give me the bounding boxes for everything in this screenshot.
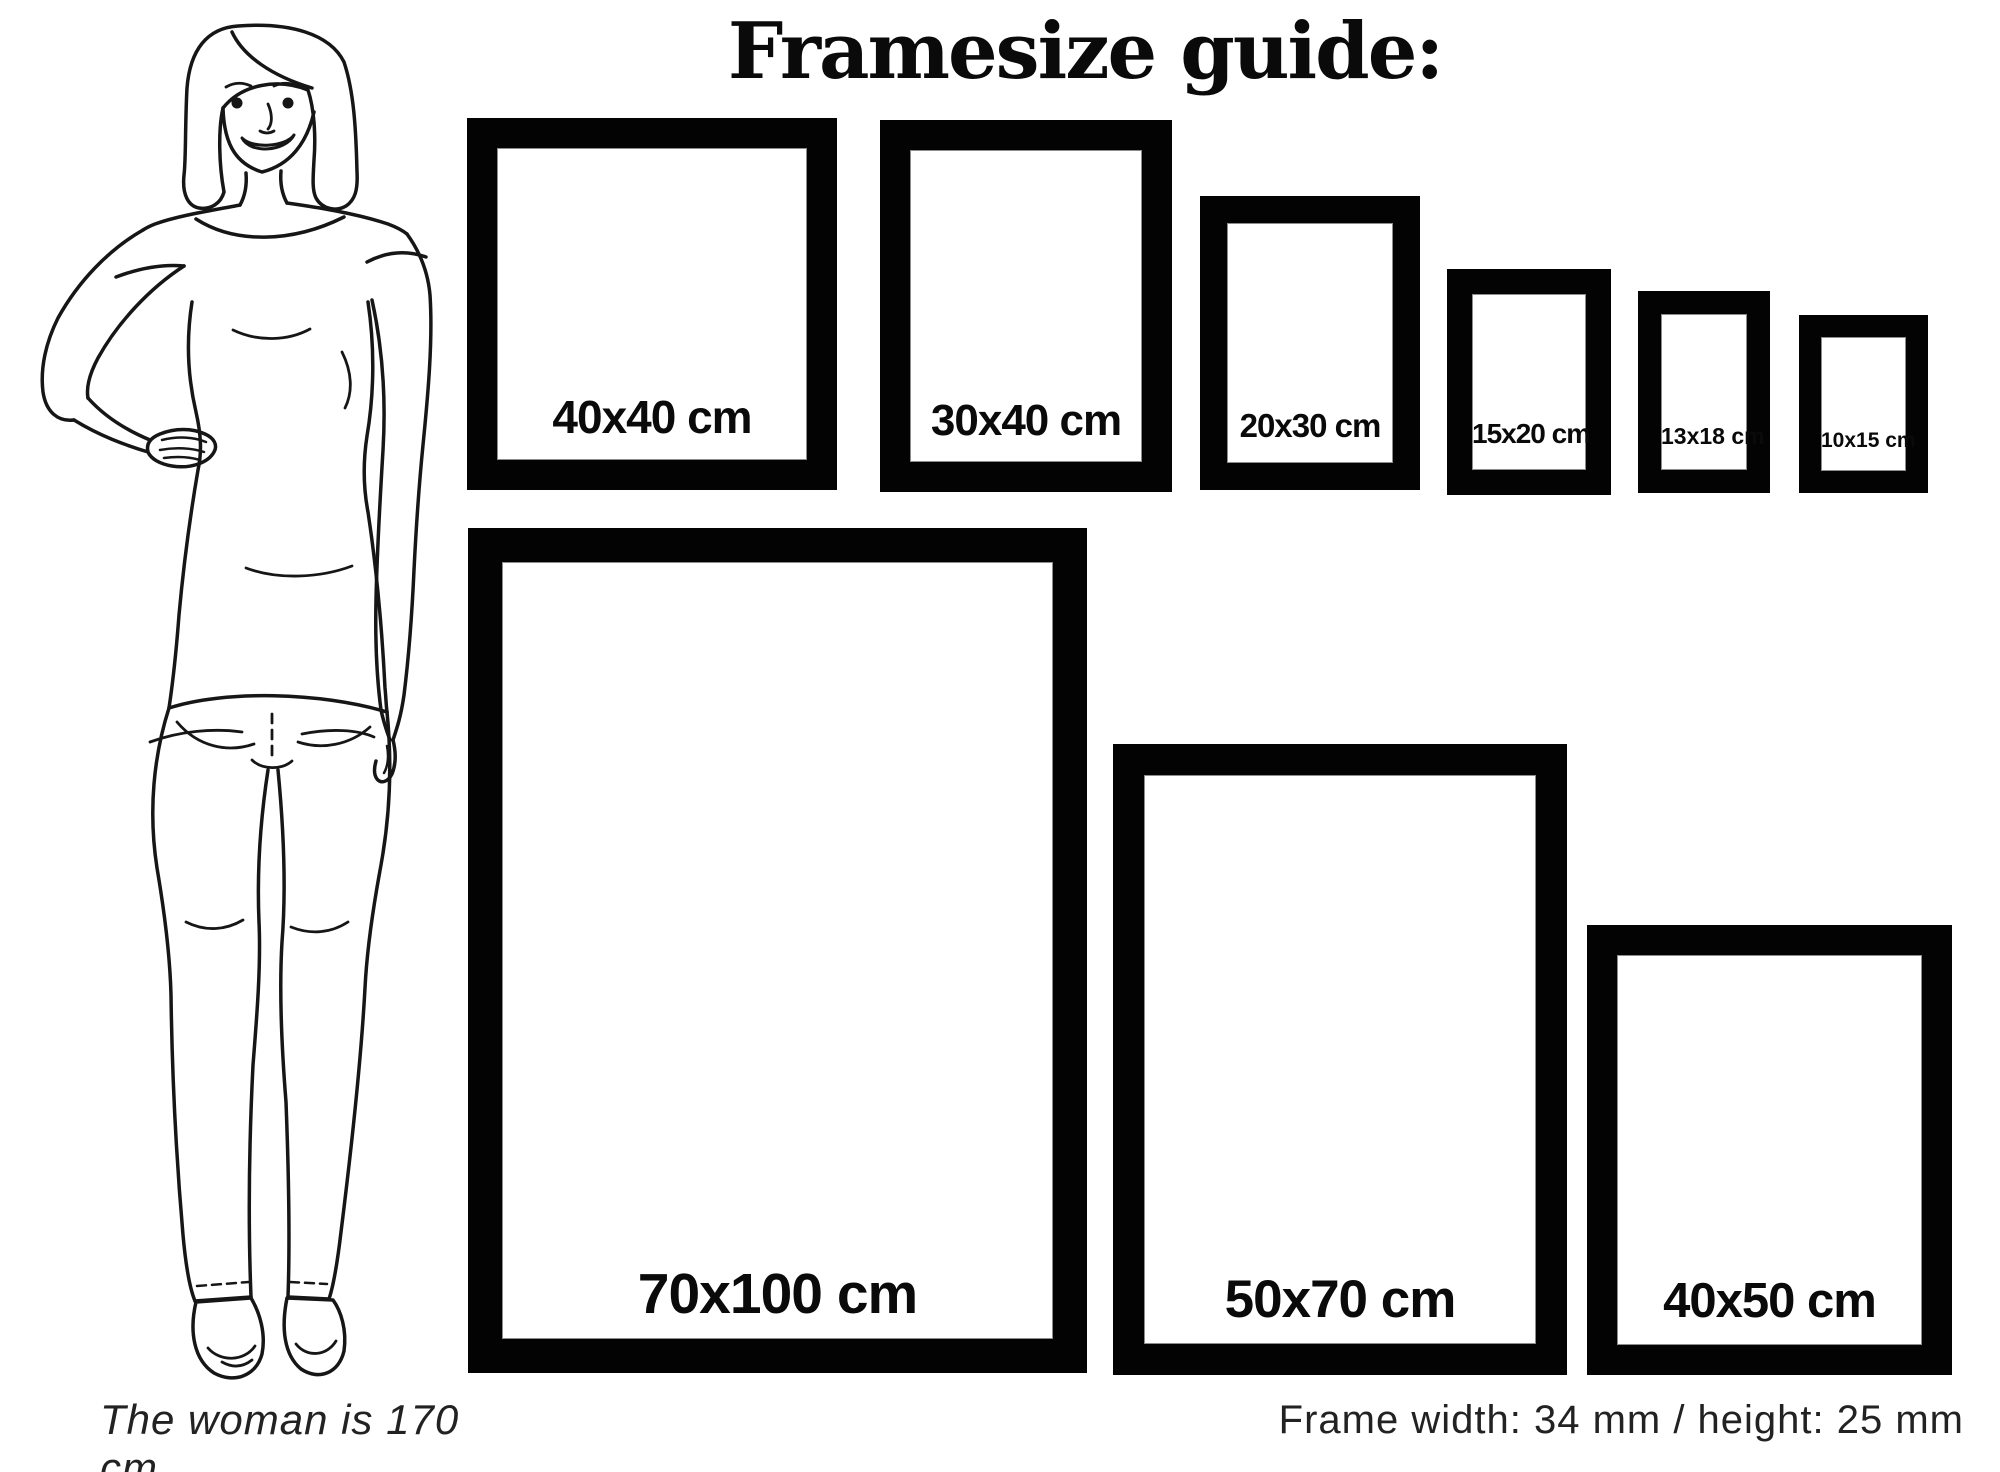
frame-size-label: 13x18 cm — [1661, 423, 1747, 450]
woman-right-shoe — [284, 1298, 345, 1375]
frame-10x15: 10x15 cm — [1799, 315, 1928, 493]
woman-face — [223, 108, 314, 172]
woman-right-arm — [393, 234, 431, 740]
page-title: Framesize guide: — [565, 6, 1605, 97]
framesize-guide: Framesize guide: — [0, 0, 2000, 1472]
frame-size-label: 15x20 cm — [1472, 418, 1586, 450]
frame-size-label: 40x50 cm — [1617, 1273, 1922, 1329]
frame-dimensions-note: Frame width: 34 mm / height: 25 mm — [1064, 1398, 1964, 1443]
frame-20x30: 20x30 cm — [1200, 196, 1420, 490]
frame-size-label: 40x40 cm — [497, 390, 807, 444]
frame-15x20: 15x20 cm — [1447, 269, 1611, 495]
woman-right-leg — [329, 712, 390, 1299]
woman-left-leg — [153, 708, 195, 1301]
frame-13x18: 13x18 cm — [1638, 291, 1770, 493]
frame-size-label: 20x30 cm — [1227, 407, 1393, 445]
frame-size-label: 70x100 cm — [502, 1261, 1053, 1327]
woman-figure-svg — [0, 0, 470, 1400]
frame-size-label: 30x40 cm — [910, 396, 1142, 446]
woman-torso — [169, 302, 200, 708]
frame-40x50: 40x50 cm — [1587, 925, 1952, 1375]
frame-30x40: 30x40 cm — [880, 120, 1172, 492]
woman-height-caption: The woman is 170 cm — [100, 1396, 500, 1472]
woman-illustration — [0, 0, 470, 1400]
frame-size-label: 10x15 cm — [1821, 429, 1906, 453]
woman-jeans-pocket-left — [177, 722, 254, 748]
frame-70x100: 70x100 cm — [468, 528, 1087, 1373]
woman-left-arm — [42, 230, 143, 420]
frame-50x70: 50x70 cm — [1113, 744, 1567, 1375]
frame-40x40: 40x40 cm — [467, 118, 837, 490]
frame-size-label: 50x70 cm — [1144, 1269, 1536, 1330]
